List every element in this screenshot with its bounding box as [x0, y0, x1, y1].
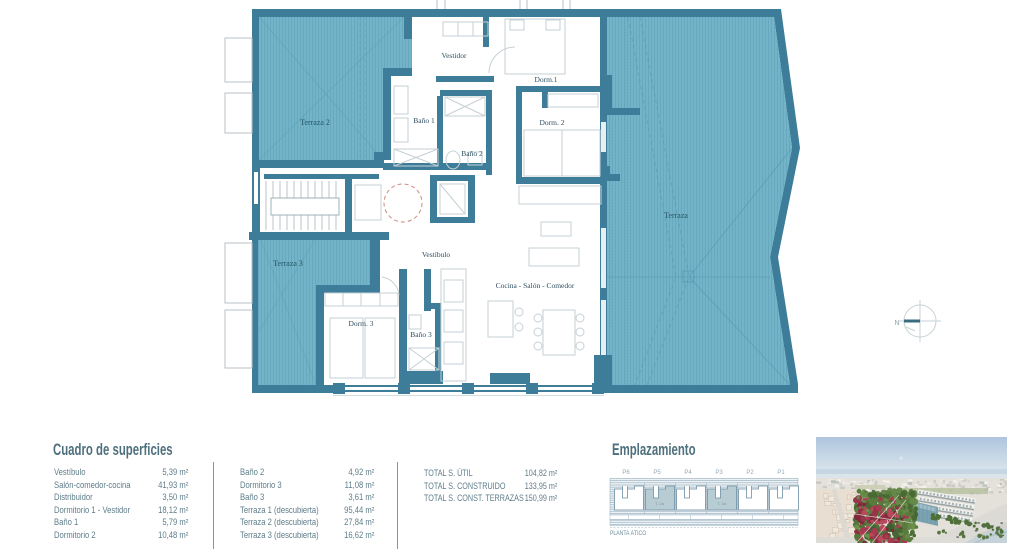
svg-text:Dorm.1: Dorm.1: [534, 75, 557, 84]
svg-text:Terraza 3: Terraza 3: [273, 259, 303, 268]
svg-text:T. 2a: T. 2a: [655, 501, 664, 506]
svg-text:Cocina - Salón - Comedor: Cocina - Salón - Comedor: [496, 281, 575, 290]
svg-text:T. 2a: T. 2a: [717, 501, 726, 506]
svg-text:Dorm. 2: Dorm. 2: [540, 118, 565, 127]
svg-text:P3: P3: [715, 470, 723, 476]
svg-text:Baño 3: Baño 3: [410, 330, 432, 339]
svg-text:P6: P6: [622, 470, 630, 476]
svg-text:Baño 1: Baño 1: [413, 116, 435, 125]
svg-text:Terraza: Terraza: [664, 211, 688, 220]
svg-text:P1: P1: [777, 470, 785, 476]
svg-text:Vestidor: Vestidor: [442, 51, 468, 60]
svg-text:Vestíbulo: Vestíbulo: [422, 250, 451, 259]
svg-text:P5: P5: [653, 470, 661, 476]
svg-text:P2: P2: [746, 470, 754, 476]
svg-text:N: N: [894, 320, 899, 327]
svg-text:Dorm. 3: Dorm. 3: [349, 319, 374, 328]
svg-text:P4: P4: [684, 470, 692, 476]
svg-text:Terraza 2: Terraza 2: [300, 118, 330, 127]
svg-text:Baño 2: Baño 2: [461, 149, 483, 158]
